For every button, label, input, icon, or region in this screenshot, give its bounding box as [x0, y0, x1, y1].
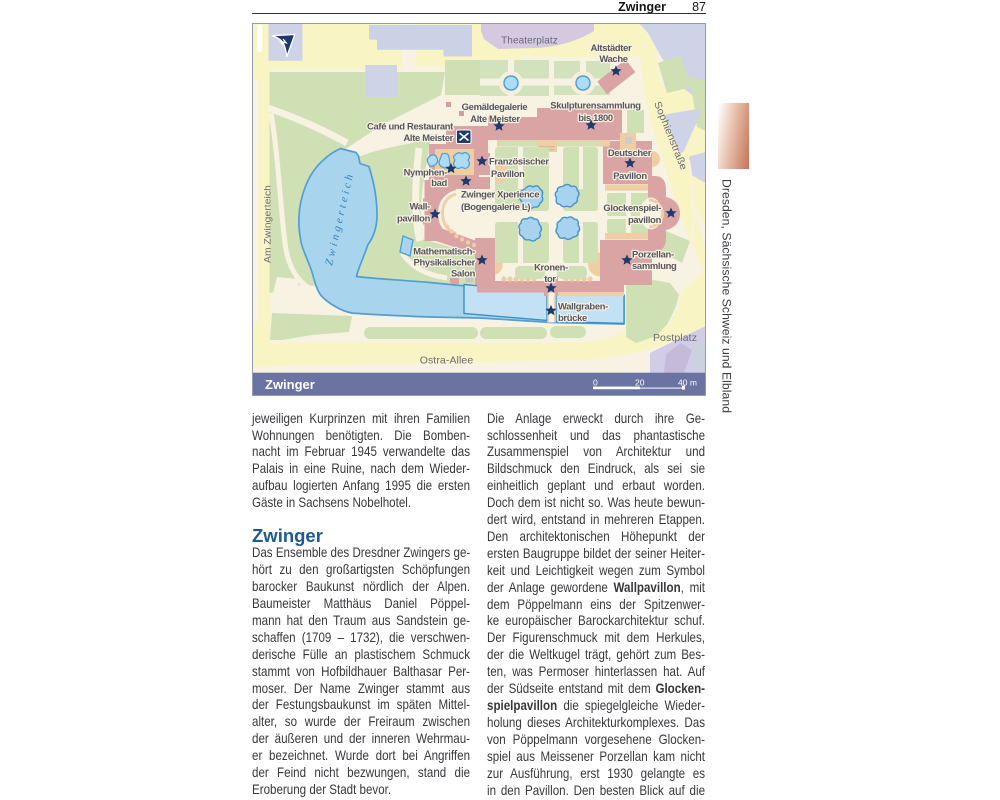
- svg-text:Theaterplatz: Theaterplatz: [501, 36, 558, 47]
- svg-text:Glockenspiel-: Glockenspiel-: [603, 202, 661, 213]
- svg-text:bad: bad: [431, 177, 447, 188]
- svg-text:Pavillon: Pavillon: [491, 168, 525, 179]
- svg-text:Pavillon: Pavillon: [613, 170, 647, 181]
- svg-text:brücke: brücke: [558, 312, 587, 323]
- svg-text:sammlung: sammlung: [632, 260, 677, 271]
- svg-text:40 m: 40 m: [678, 378, 697, 388]
- svg-text:pavillon: pavillon: [397, 213, 431, 224]
- svg-text:Wache: Wache: [599, 53, 627, 64]
- svg-text:Französischer: Französischer: [489, 156, 549, 167]
- svg-text:Mathematisch-: Mathematisch-: [413, 246, 475, 257]
- svg-text:Alte Meister: Alte Meister: [470, 113, 520, 124]
- svg-text:Altstädter: Altstädter: [591, 42, 632, 53]
- svg-text:pavillon: pavillon: [628, 214, 662, 225]
- svg-text:20: 20: [635, 378, 645, 388]
- svg-text:Nymphen-: Nymphen-: [404, 167, 448, 178]
- svg-text:Zwinger Xperience: Zwinger Xperience: [461, 189, 539, 200]
- svg-text:Porzellan-: Porzellan-: [632, 249, 674, 260]
- svg-text:Am Zwingerteich: Am Zwingerteich: [263, 185, 274, 263]
- svg-text:Deutscher: Deutscher: [608, 147, 652, 158]
- svg-text:Wallgraben-: Wallgraben-: [558, 301, 608, 312]
- svg-text:Alte Meister: Alte Meister: [403, 132, 453, 143]
- svg-text:Ostra-Allee: Ostra-Allee: [420, 355, 474, 367]
- svg-text:tor: tor: [544, 273, 556, 284]
- svg-text:Physikalischer: Physikalischer: [414, 257, 476, 268]
- svg-text:Salon: Salon: [451, 268, 476, 279]
- svg-text:Wall-: Wall-: [409, 201, 430, 212]
- svg-text:Café und Restaurant: Café und Restaurant: [367, 121, 453, 132]
- svg-text:Zwinger: Zwinger: [265, 377, 315, 392]
- svg-text:Skulpturensammlung: Skulpturensammlung: [550, 100, 641, 111]
- svg-text:Postplatz: Postplatz: [653, 332, 697, 344]
- svg-text:(Bogengalerie L): (Bogengalerie L): [461, 201, 530, 212]
- svg-text:0: 0: [593, 378, 598, 388]
- svg-text:Kronen-: Kronen-: [534, 262, 568, 273]
- svg-text:Gemäldegalerie: Gemäldegalerie: [462, 101, 528, 112]
- svg-text:bis 1800: bis 1800: [578, 112, 613, 123]
